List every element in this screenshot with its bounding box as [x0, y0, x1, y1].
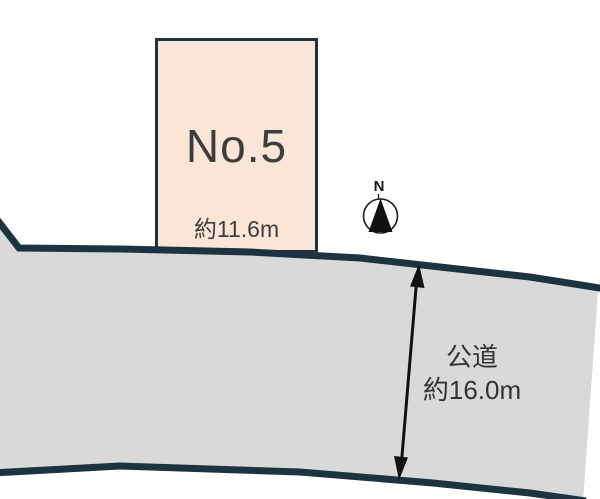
north-compass-icon [364, 194, 398, 233]
compass-north-label: N [366, 179, 392, 194]
road-label-block: 公道 約16.0m [415, 341, 529, 406]
road-width-label: 約16.0m [415, 374, 529, 407]
diagram-canvas [0, 0, 600, 499]
road-name-label: 公道 [415, 341, 529, 374]
land-plot-diagram: No.5 約11.6m N 公道 約16.0m [0, 0, 600, 499]
